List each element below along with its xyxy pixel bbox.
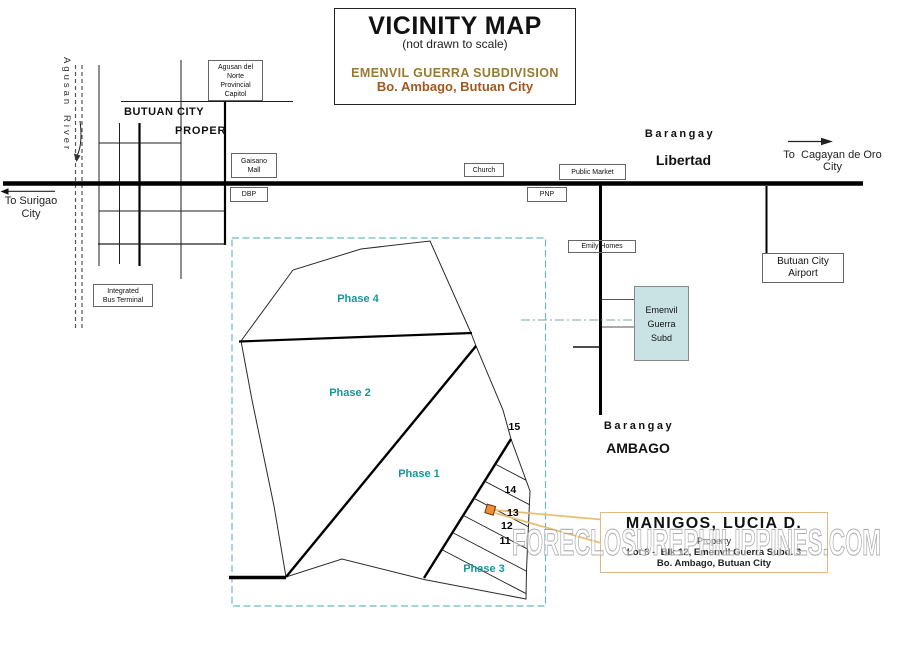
svg-text:FORECLOSUREPHILIPPINES.COM: FORECLOSUREPHILIPPINES.COM [512, 522, 881, 563]
